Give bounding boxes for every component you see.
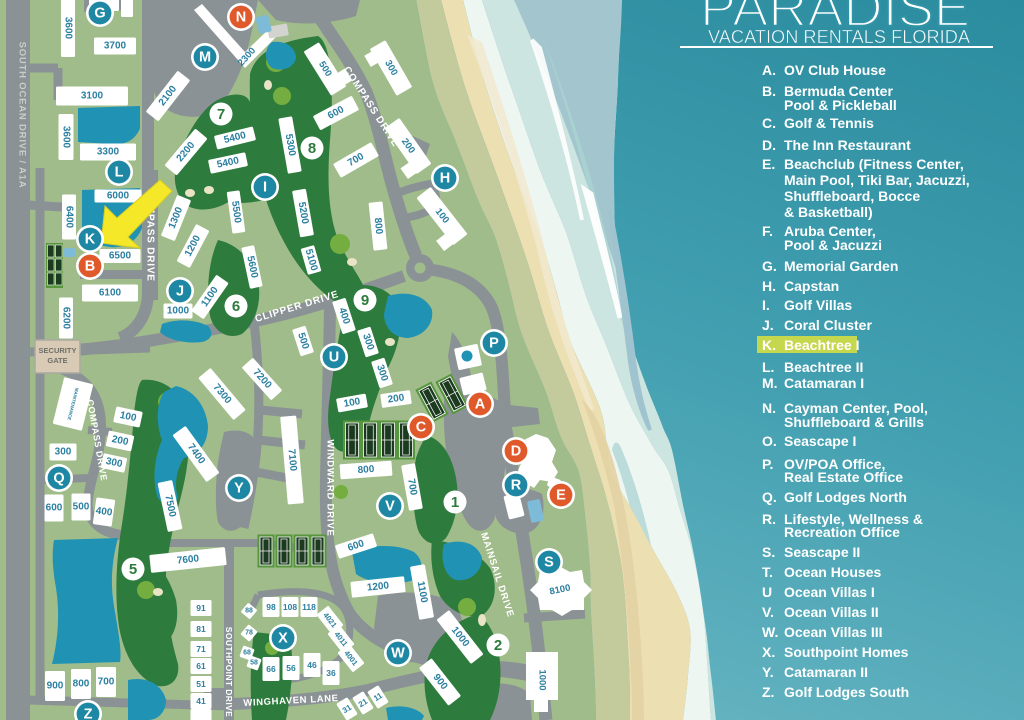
svg-text:900: 900 xyxy=(47,681,64,692)
svg-text:46: 46 xyxy=(307,660,317,670)
svg-text:Catamaran I: Catamaran I xyxy=(784,375,864,391)
svg-text:T.: T. xyxy=(762,564,773,580)
svg-text:G.: G. xyxy=(762,258,777,274)
svg-text:68: 68 xyxy=(243,650,251,657)
svg-text:OV Club House: OV Club House xyxy=(784,62,886,78)
svg-text:Catamaran II: Catamaran II xyxy=(784,664,868,680)
svg-text:Recreation Office: Recreation Office xyxy=(784,524,900,540)
svg-text:108: 108 xyxy=(283,602,297,612)
svg-text:O.: O. xyxy=(762,433,777,449)
svg-text:Beachclub (Fitness Center,: Beachclub (Fitness Center, xyxy=(784,156,964,172)
svg-text:Real Estate Office: Real Estate Office xyxy=(784,469,903,485)
svg-text:Seascape I: Seascape I xyxy=(784,433,856,449)
svg-text:61: 61 xyxy=(196,661,206,671)
svg-text:K.: K. xyxy=(762,337,776,353)
svg-text:J.: J. xyxy=(762,317,774,333)
svg-text:L.: L. xyxy=(762,359,774,375)
svg-text:3700: 3700 xyxy=(104,41,127,52)
svg-text:600: 600 xyxy=(46,503,63,514)
svg-text:6200: 6200 xyxy=(61,307,72,330)
svg-text:W.: W. xyxy=(762,624,778,640)
svg-text:3600: 3600 xyxy=(61,126,72,149)
svg-text:Memorial Garden: Memorial Garden xyxy=(784,258,898,274)
svg-text:Q.: Q. xyxy=(762,489,777,505)
svg-text:S: S xyxy=(544,555,554,571)
svg-text:Ocean Villas III: Ocean Villas III xyxy=(784,624,883,640)
svg-text:X.: X. xyxy=(762,644,775,660)
svg-text:SECURITY: SECURITY xyxy=(39,346,77,355)
svg-text:M: M xyxy=(199,50,211,66)
svg-text:F.: F. xyxy=(762,223,773,239)
svg-text:R.: R. xyxy=(762,511,776,527)
svg-text:J: J xyxy=(176,284,184,300)
svg-text:Pool & Jacuzzi: Pool & Jacuzzi xyxy=(784,237,882,253)
svg-text:P: P xyxy=(489,336,499,352)
svg-text:D.: D. xyxy=(762,137,776,153)
svg-text:Z.: Z. xyxy=(762,684,774,700)
svg-text:V: V xyxy=(385,499,395,515)
svg-text:Beachtree II: Beachtree II xyxy=(784,359,863,375)
svg-text:G: G xyxy=(94,6,105,22)
svg-text:N.: N. xyxy=(762,400,776,416)
svg-text:W: W xyxy=(391,646,405,662)
svg-text:3100: 3100 xyxy=(81,91,104,102)
svg-text:Main Pool, Tiki Bar, Jacuzzi,: Main Pool, Tiki Bar, Jacuzzi, xyxy=(784,172,970,188)
svg-text:Southpoint Homes: Southpoint Homes xyxy=(784,644,909,660)
svg-text:1000: 1000 xyxy=(167,306,190,317)
svg-text:6500: 6500 xyxy=(109,251,132,262)
svg-text:1: 1 xyxy=(451,494,459,511)
svg-text:C.: C. xyxy=(762,115,776,131)
svg-text:66: 66 xyxy=(266,664,276,674)
svg-text:Shuffleboard & Grills: Shuffleboard & Grills xyxy=(784,414,924,430)
svg-text:SOUTHPOINT DRIVE: SOUTHPOINT DRIVE xyxy=(224,627,234,717)
svg-text:71: 71 xyxy=(196,644,206,654)
svg-text:E.: E. xyxy=(762,156,775,172)
svg-text:9: 9 xyxy=(361,292,369,309)
svg-text:51: 51 xyxy=(196,679,206,689)
svg-text:800: 800 xyxy=(73,679,90,690)
svg-text:I: I xyxy=(263,180,267,196)
svg-text:3600: 3600 xyxy=(63,17,74,40)
svg-text:U: U xyxy=(329,350,339,366)
svg-text:L: L xyxy=(115,165,124,181)
svg-text:58: 58 xyxy=(250,660,258,667)
svg-text:88: 88 xyxy=(245,608,253,615)
svg-text:800: 800 xyxy=(372,217,385,235)
svg-text:D: D xyxy=(511,444,521,460)
svg-text:U: U xyxy=(762,584,772,600)
svg-text:B.: B. xyxy=(762,83,776,99)
svg-text:81: 81 xyxy=(196,624,206,634)
svg-text:Q: Q xyxy=(53,471,64,487)
svg-text:A.: A. xyxy=(762,62,776,78)
svg-text:Y.: Y. xyxy=(762,664,774,680)
svg-text:Ocean Villas I: Ocean Villas I xyxy=(784,584,875,600)
svg-text:Golf & Tennis: Golf & Tennis xyxy=(784,115,874,131)
svg-text:S.: S. xyxy=(762,544,775,560)
svg-text:Golf Lodges North: Golf Lodges North xyxy=(784,489,907,505)
svg-text:N: N xyxy=(236,10,246,26)
svg-text:H: H xyxy=(440,171,450,187)
svg-text:800: 800 xyxy=(357,464,375,476)
svg-text:P.: P. xyxy=(762,456,773,472)
svg-text:6100: 6100 xyxy=(99,288,122,299)
svg-text:Y: Y xyxy=(234,481,244,497)
svg-text:R: R xyxy=(511,478,522,494)
svg-text:Capstan: Capstan xyxy=(784,278,839,294)
svg-text:& Basketball): & Basketball) xyxy=(784,204,873,220)
svg-text:E: E xyxy=(556,488,566,504)
svg-text:36: 36 xyxy=(326,668,336,678)
svg-text:6: 6 xyxy=(232,298,240,315)
svg-text:Beachtree I: Beachtree I xyxy=(784,337,859,353)
svg-text:7100: 7100 xyxy=(286,448,299,472)
svg-text:The Inn Restaurant: The Inn Restaurant xyxy=(784,137,911,153)
svg-text:Z: Z xyxy=(84,707,93,720)
svg-text:Golf Villas: Golf Villas xyxy=(784,297,852,313)
svg-text:Ocean Houses: Ocean Houses xyxy=(784,564,881,580)
svg-text:5: 5 xyxy=(129,561,137,578)
svg-text:B: B xyxy=(85,259,95,275)
svg-text:78: 78 xyxy=(245,630,253,637)
svg-text:Coral Cluster: Coral Cluster xyxy=(784,317,872,333)
svg-text:Shuffleboard, Bocce: Shuffleboard, Bocce xyxy=(784,188,920,204)
svg-text:Golf Lodges South: Golf Lodges South xyxy=(784,684,909,700)
svg-text:H.: H. xyxy=(762,278,776,294)
svg-text:2: 2 xyxy=(494,637,502,654)
svg-text:8: 8 xyxy=(308,140,316,157)
svg-text:VACATION RENTALS FLORIDA: VACATION RENTALS FLORIDA xyxy=(708,27,970,47)
svg-text:Seascape II: Seascape II xyxy=(784,544,860,560)
svg-text:3300: 3300 xyxy=(97,147,120,158)
svg-text:M.: M. xyxy=(762,375,778,391)
svg-text:GATE: GATE xyxy=(47,356,67,365)
svg-text:56: 56 xyxy=(286,663,296,673)
svg-text:118: 118 xyxy=(302,602,316,612)
svg-text:Ocean Villas II: Ocean Villas II xyxy=(784,604,879,620)
svg-text:1000: 1000 xyxy=(537,669,548,690)
svg-text:500: 500 xyxy=(73,502,90,513)
svg-text:C: C xyxy=(416,420,427,436)
svg-text:WINDWARD DRIVE: WINDWARD DRIVE xyxy=(325,439,336,536)
svg-text:98: 98 xyxy=(266,602,276,612)
svg-text:41: 41 xyxy=(196,696,206,706)
svg-text:X: X xyxy=(278,631,288,647)
svg-text:V.: V. xyxy=(762,604,774,620)
svg-text:A: A xyxy=(475,397,486,413)
svg-text:SOUTH OCEAN DRIVE / A1A: SOUTH OCEAN DRIVE / A1A xyxy=(17,42,28,189)
svg-text:6400: 6400 xyxy=(64,206,75,229)
svg-text:Pool & Pickleball: Pool & Pickleball xyxy=(784,97,897,113)
svg-text:300: 300 xyxy=(55,447,72,458)
svg-text:7: 7 xyxy=(217,106,225,123)
svg-text:I.: I. xyxy=(762,297,770,313)
svg-text:6000: 6000 xyxy=(107,191,130,202)
svg-text:K: K xyxy=(85,232,96,248)
svg-text:91: 91 xyxy=(196,603,206,613)
svg-text:700: 700 xyxy=(98,677,115,688)
